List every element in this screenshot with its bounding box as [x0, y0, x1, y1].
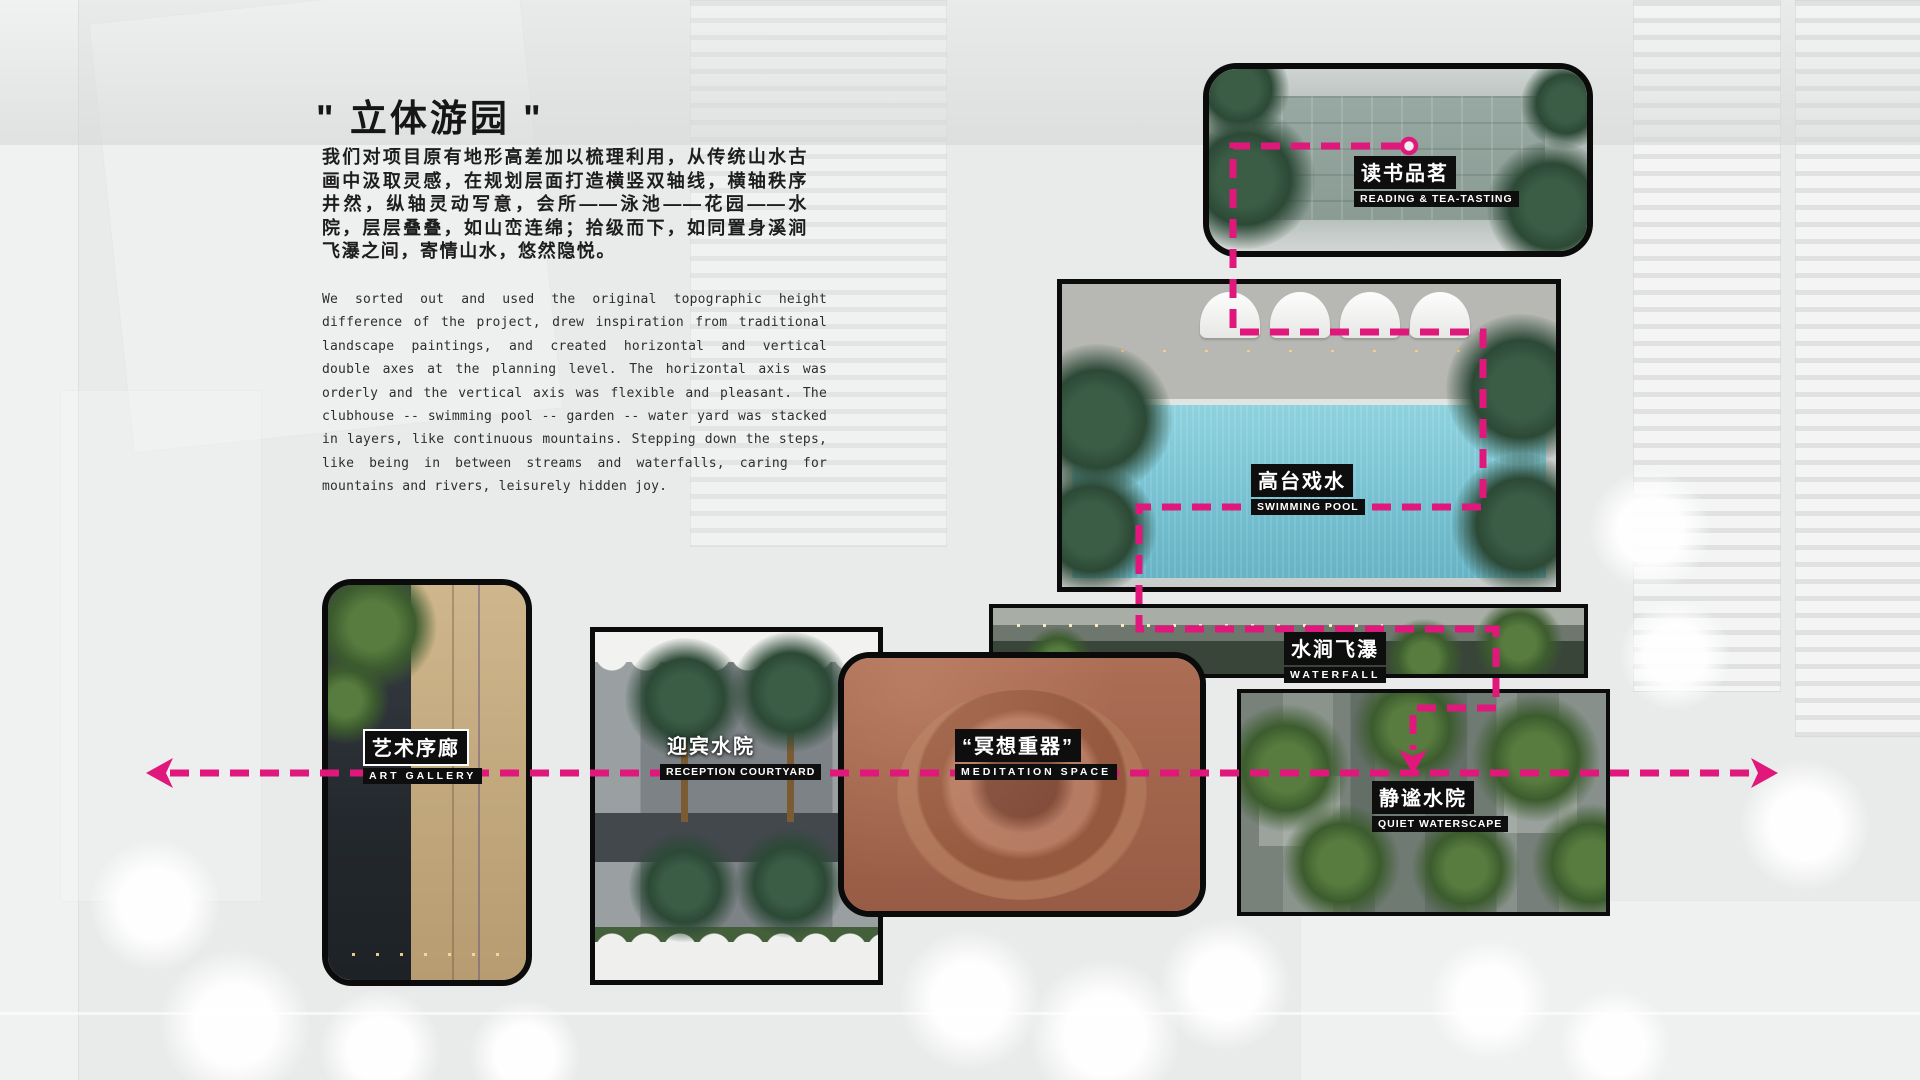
tree-decor: [1474, 604, 1564, 678]
label-waterfall-zh: 水涧飞瀑: [1284, 632, 1386, 665]
label-waterfall-en: WATERFALL: [1284, 667, 1386, 683]
label-swimming-pool: 高台戏水 SWIMMING POOL: [1251, 464, 1365, 515]
tree-puff: [320, 990, 440, 1080]
background-building: [60, 390, 262, 902]
page-title: " 立体游园 ": [316, 88, 544, 142]
tree-puff: [1030, 960, 1180, 1080]
tree-puff: [160, 950, 310, 1080]
label-swimming-pool-en: SWIMMING POOL: [1251, 499, 1365, 515]
background-road-line: [0, 1012, 1920, 1015]
intro-paragraph-zh: 我们对项目原有地形高差加以梳理利用，从传统山水古画中汲取灵感，在规划层面打造横竖…: [322, 146, 808, 264]
label-meditation-space-zh: “冥想重器”: [955, 729, 1081, 762]
label-quiet-waterscape: 静谧水院 QUIET WATERSCAPE: [1372, 781, 1508, 832]
tree-puff: [90, 840, 220, 970]
label-reading-tea-zh: 读书品茗: [1354, 156, 1456, 189]
lights-decor: [352, 953, 502, 956]
label-meditation-space: “冥想重器” MEDITATION SPACE: [955, 729, 1117, 780]
label-reading-tea-en: READING & TEA-TASTING: [1354, 191, 1519, 207]
label-reading-tea: 读书品茗 READING & TEA-TASTING: [1354, 156, 1519, 207]
label-meditation-space-en: MEDITATION SPACE: [955, 764, 1117, 780]
label-swimming-pool-zh: 高台戏水: [1251, 464, 1353, 497]
panel-meditation-space: [838, 652, 1206, 917]
label-quiet-waterscape-zh: 静谧水院: [1372, 781, 1474, 814]
label-art-gallery: 艺术序廊 ART GALLERY: [363, 729, 482, 784]
label-reception-courtyard: 迎宾水院 RECEPTION COURTYARD: [660, 729, 821, 780]
tree-puff: [1740, 760, 1870, 890]
tint-overlay: [844, 658, 1200, 911]
tree-puff: [1590, 470, 1710, 590]
panel-swimming-pool: [1057, 279, 1561, 592]
label-art-gallery-zh: 艺术序廊: [363, 729, 469, 766]
label-quiet-waterscape-en: QUIET WATERSCAPE: [1372, 816, 1508, 832]
palm-decor: [629, 832, 739, 942]
presentation-page: " 立体游园 " 我们对项目原有地形高差加以梳理利用，从传统山水古画中汲取灵感，…: [0, 0, 1920, 1080]
intro-paragraph-en: We sorted out and used the original topo…: [322, 288, 827, 499]
label-art-gallery-en: ART GALLERY: [363, 768, 482, 784]
tree-puff: [900, 930, 1040, 1070]
tree-puff: [1160, 920, 1290, 1050]
tree-puff: [1620, 600, 1730, 710]
tree-puff: [1430, 940, 1550, 1060]
lights-decor: [1121, 350, 1496, 352]
lights-decor: [1017, 624, 1383, 627]
awning-decor: [595, 942, 878, 980]
palm-decor: [735, 828, 845, 938]
label-waterfall: 水涧飞瀑 WATERFALL: [1284, 632, 1386, 683]
label-reception-courtyard-zh: 迎宾水院: [660, 729, 762, 762]
label-reception-courtyard-en: RECEPTION COURTYARD: [660, 764, 821, 780]
background-ground: [0, 0, 1920, 145]
